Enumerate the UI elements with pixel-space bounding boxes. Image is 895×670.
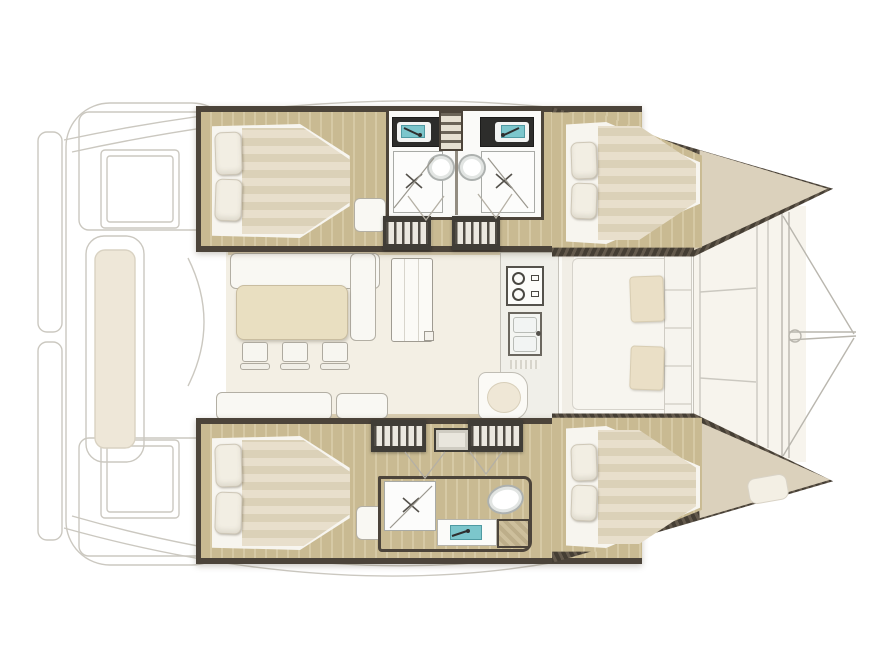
sink-basin xyxy=(513,317,537,333)
cabinet-knob xyxy=(424,331,434,341)
bow-berth-cushion xyxy=(746,473,790,506)
companionway-stairs-starboard-aft xyxy=(371,420,426,452)
shower-port-forward xyxy=(481,151,535,213)
storage-cabinet xyxy=(391,258,433,342)
transom-bench-cushion xyxy=(95,250,135,448)
burner xyxy=(512,288,525,301)
cockpit-table-port xyxy=(101,150,179,228)
entry-step xyxy=(434,428,470,452)
sink-basin-teal xyxy=(401,125,425,138)
burner xyxy=(512,272,525,285)
dining-table xyxy=(236,285,348,340)
galley-double-sink xyxy=(508,312,542,356)
lounge-right-wall xyxy=(664,252,692,416)
galley-peninsula xyxy=(478,372,528,420)
port-heads xyxy=(386,108,544,220)
stove-control xyxy=(531,275,539,281)
stove xyxy=(506,266,544,306)
escape-ladder xyxy=(439,111,463,151)
pillow xyxy=(214,132,242,176)
pillow xyxy=(570,142,597,180)
swim-platform-port xyxy=(38,132,62,332)
head-cabinet xyxy=(497,519,530,548)
pillow xyxy=(570,183,597,220)
settee-right xyxy=(350,253,376,341)
stove-control xyxy=(531,291,539,297)
drying-rack xyxy=(510,360,540,369)
companionway-stairs-port-aft xyxy=(383,216,431,250)
aft-bench-short xyxy=(336,393,388,419)
sink-basin xyxy=(513,336,537,352)
pillow xyxy=(570,444,597,482)
vanity-port-aft xyxy=(392,117,442,147)
chair xyxy=(320,342,350,372)
lounge-cushion xyxy=(629,275,665,322)
companionway-stairs-port-forward xyxy=(452,216,500,250)
pillow xyxy=(214,444,242,488)
vanity-port-forward xyxy=(480,117,534,147)
shower-starboard xyxy=(384,481,436,531)
peninsula-top xyxy=(487,382,521,413)
pillow xyxy=(570,485,597,522)
galley-faucet xyxy=(536,331,541,336)
aft-bench-long xyxy=(216,392,332,420)
chair xyxy=(280,342,310,372)
sink-basin-teal xyxy=(450,525,482,540)
pillow xyxy=(214,179,242,222)
swim-platform-starboard xyxy=(38,342,62,540)
chair xyxy=(240,342,270,372)
catamaran-floor-plan xyxy=(0,0,895,670)
lounge-cushion xyxy=(629,345,665,390)
cockpit-table-starboard xyxy=(101,440,179,518)
transom-bench xyxy=(86,236,144,462)
companionway-stairs-starboard-forward xyxy=(468,420,523,452)
sliding-door-arc xyxy=(188,258,204,386)
vanity-starboard xyxy=(437,519,497,546)
pillow xyxy=(214,492,242,535)
sink-basin-teal xyxy=(501,125,525,138)
port-cabin-seat xyxy=(354,198,386,232)
